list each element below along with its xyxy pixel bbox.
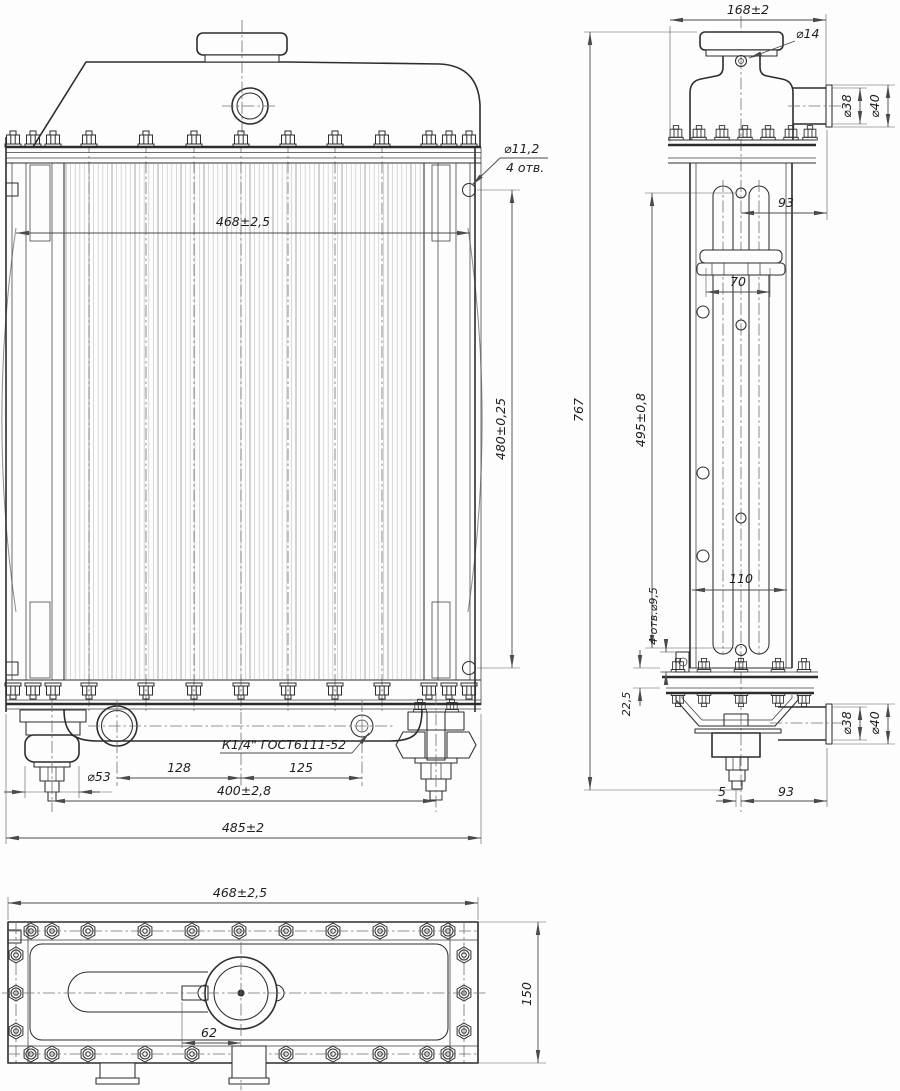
side-bottom-mount [676,695,798,789]
dim-22-5: 22,5 [620,692,633,717]
mount-hole-top [463,184,476,197]
dim-pipe-top-inner: ⌀38 [839,94,854,117]
side-channel-left [6,137,64,712]
side-view: 168±2 ⌀14 ⌀38 ⌀40 93 70 767 495±0,8 110 … [571,2,895,812]
mount-left [20,700,86,812]
side-top-bolts [669,126,817,140]
dim-overall-width: 485±2 [222,820,264,835]
tank-inner-profile [68,972,208,1012]
dim-125: 125 [289,760,313,775]
dim-overall-height: 767 [571,398,586,422]
spring-top-left [30,165,50,241]
side-bottom-flange [662,672,818,693]
spring-bottom-right [432,602,450,678]
mount-hole-bottom [463,662,476,675]
dim-70: 70 [730,274,746,289]
overflow-notch [8,930,21,943]
dim-cushion-dia: ⌀53 [87,769,110,784]
dim-height: 480±0,25 [493,398,508,460]
top-flange [6,147,481,163]
side-channel-right [424,137,481,712]
callout-cap-screw: ⌀14 [796,26,819,41]
fan-arc-left [2,228,16,612]
side-core [676,163,792,672]
tube-clamp [700,250,782,263]
dim-128: 128 [167,760,191,775]
dim-pipe-top-outer: ⌀40 [867,94,882,117]
front-dimensions: 468±2,5 480±0,25 ⌀11,2 4 отв. ⌀53 128 12… [4,141,548,844]
technical-drawing-sheet: 468±2,5 480±0,25 ⌀11,2 4 отв. ⌀53 128 12… [0,0,900,1091]
dim-62: 62 [201,1025,217,1040]
side-top-flange [668,140,816,163]
spring-bottom-left [30,602,50,678]
plan-pipes [96,1046,269,1084]
side-top-tank [690,32,845,140]
dim-core-height: 495±0,8 [633,393,648,447]
plan-view: 468±2,5 62 150 [2,885,546,1090]
spring-top-right [432,165,450,241]
dim-pipe-bottom-inner: ⌀38 [839,711,854,734]
dim-pipe-bottom-outer: ⌀40 [867,711,882,734]
callout-hole-dia: ⌀11,2 [504,141,539,156]
dim-depth: 168±2 [727,2,769,17]
filler-cap-side [700,32,783,50]
mount-right [396,693,476,812]
callout-drain-spec: К1/4" ГОСТ6111-52 [222,737,346,752]
dim-93-top: 93 [778,195,794,210]
rubber-cushion-right-a [396,732,425,758]
top-tank [33,20,480,147]
dim-plan-depth: 150 [519,982,534,1006]
dim-110: 110 [729,571,753,586]
core-fins [66,164,420,679]
dim-93-bottom: 93 [778,784,794,799]
radiator-drawing: 468±2,5 480±0,25 ⌀11,2 4 отв. ⌀53 128 12… [0,0,900,1091]
callout-mount-holes: 4 отв.⌀9,5 [647,587,660,645]
front-view: 468±2,5 480±0,25 ⌀11,2 4 отв. ⌀53 128 12… [2,20,548,844]
dim-5: 5 [718,784,726,799]
dim-core-width: 468±2,5 [216,214,270,229]
callout-hole-qty: 4 отв. [506,160,544,175]
dim-plan-width: 468±2,5 [213,885,267,900]
dim-mount-span: 400±2,8 [217,783,271,798]
cushion-block-side [712,733,760,757]
rubber-cushion-right-b [447,732,476,758]
